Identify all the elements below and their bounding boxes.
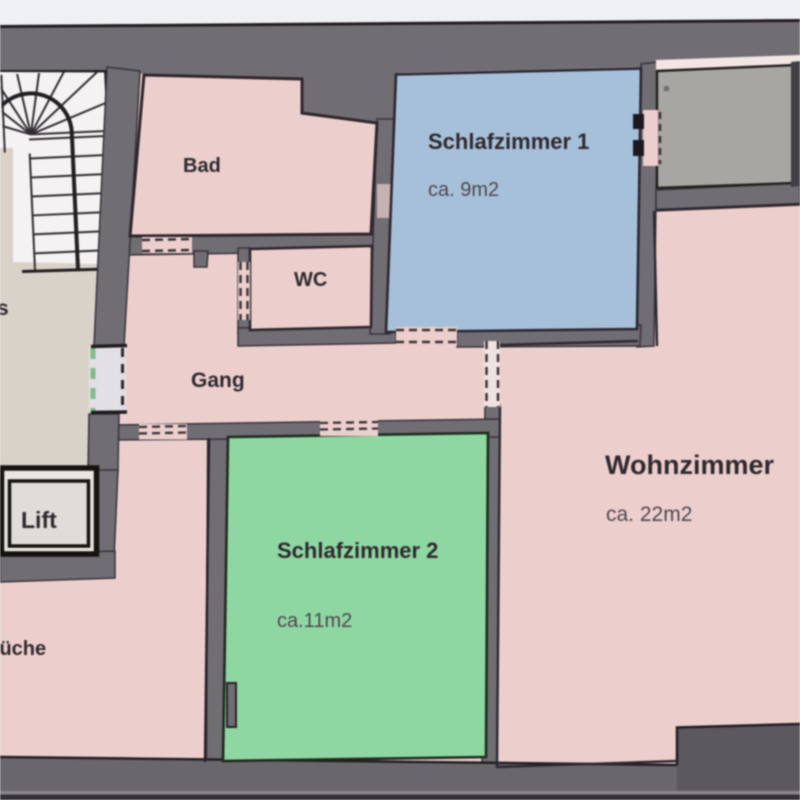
svg-text:Schlafzimmer 2: Schlafzimmer 2 xyxy=(277,538,438,563)
svg-text:Wohnzimmer: Wohnzimmer xyxy=(605,450,775,480)
svg-text:ca. 22m2: ca. 22m2 xyxy=(606,503,692,526)
svg-text:Gang: Gang xyxy=(191,369,245,392)
svg-text:ca.11m2: ca.11m2 xyxy=(277,610,352,632)
svg-text:ca. 9m2: ca. 9m2 xyxy=(428,179,499,201)
svg-text:WC: WC xyxy=(294,269,327,291)
svg-text:s: s xyxy=(0,297,9,320)
svg-text:Lift: Lift xyxy=(21,507,57,533)
svg-text:Küche: Küche xyxy=(0,638,46,660)
svg-text:Schlafzimmer 1: Schlafzimmer 1 xyxy=(428,129,589,154)
svg-text:Bad: Bad xyxy=(183,155,221,177)
